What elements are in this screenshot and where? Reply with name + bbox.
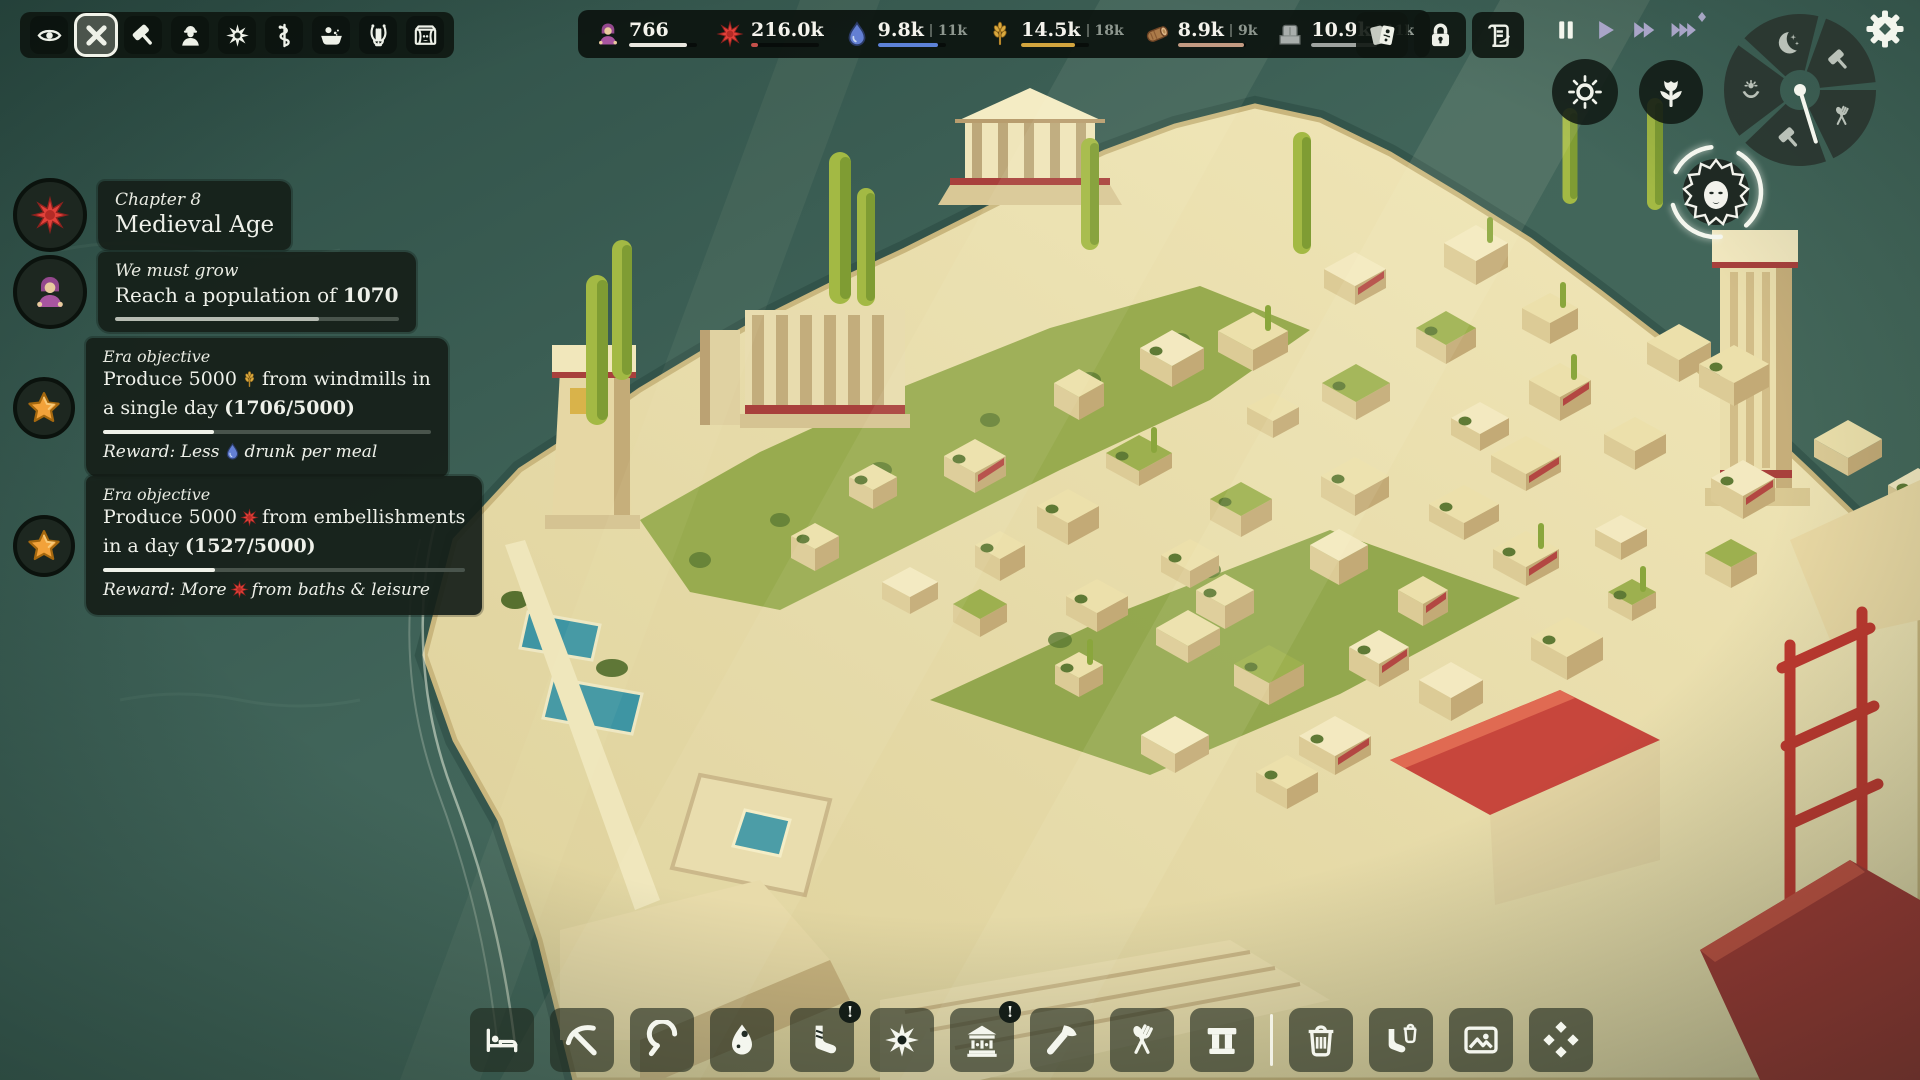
egg-icon: [722, 1020, 762, 1060]
sickle-icon: [642, 1020, 682, 1060]
star-icon: [26, 390, 62, 426]
build-cutlery-button[interactable]: [1110, 1008, 1174, 1072]
era1-progress-bar: [103, 430, 431, 434]
lock-button[interactable]: [1414, 12, 1466, 58]
wheat-icon: [240, 370, 259, 389]
build-spiky-sun-button[interactable]: [870, 1008, 934, 1072]
resource-bar-track: [629, 43, 697, 47]
era2-kicker: Era objective: [103, 485, 465, 505]
population-icon-holder: [13, 255, 87, 329]
red-sun-icon: [716, 19, 744, 49]
era-objective-windmills[interactable]: Era objective Produce 5000from windmills…: [13, 338, 448, 477]
picture-icon: [1461, 1020, 1501, 1060]
red-sun-icon: [30, 195, 70, 235]
tool-spiky-sun-button[interactable]: [218, 16, 256, 54]
resource-wood-log[interactable]: 8.9k9k: [1143, 19, 1258, 49]
era1-kicker: Era objective: [103, 347, 431, 367]
fast-forward-icon: [1630, 16, 1658, 44]
resource-value: 766: [629, 21, 669, 40]
tool-lyre-button[interactable]: [359, 16, 397, 54]
spiky-sun-icon: [224, 22, 251, 49]
resource-villager[interactable]: 766: [594, 19, 697, 49]
build-sandal-trash-button[interactable]: [1369, 1008, 1433, 1072]
resource-value: 216.0k: [751, 21, 824, 40]
era2-progress-bar: [103, 568, 465, 572]
tool-bath-button[interactable]: [312, 16, 350, 54]
fastest-forward-button[interactable]: [1669, 16, 1697, 44]
resource-max: 11k: [938, 24, 967, 38]
tulip-icon: [1652, 73, 1690, 111]
build-diamonds-button[interactable]: [1529, 1008, 1593, 1072]
settings-button[interactable]: [1864, 8, 1906, 50]
hand-axe-icon: [1042, 1020, 1082, 1060]
sandal-icon: [802, 1020, 842, 1060]
era2-goal: Produce 5000from embellishments in a day…: [103, 505, 465, 560]
eye-icon: [36, 22, 63, 49]
chapter-kicker: Chapter 8: [115, 190, 274, 211]
resource-water-drop[interactable]: 9.8k11k: [843, 19, 967, 49]
tool-theater-button[interactable]: [406, 16, 444, 54]
build-trash-button[interactable]: [1289, 1008, 1353, 1072]
view-mode-toolbar: [20, 12, 454, 58]
water-drop-icon: [223, 442, 242, 461]
alert-badge: !: [999, 1001, 1021, 1023]
resource-red-sun[interactable]: 216.0k: [716, 19, 824, 49]
era-objective-embellishments[interactable]: Era objective Produce 5000from embellish…: [13, 476, 482, 615]
resource-bar: 766216.0k9.8k11k14.5k18k8.9k9k10.9k11k: [578, 10, 1430, 58]
resource-bar-track: [878, 43, 946, 47]
resource-value: 14.5k: [1021, 21, 1080, 40]
arch-icon: [1202, 1020, 1242, 1060]
build-arch-button[interactable]: [1190, 1008, 1254, 1072]
tool-snake-staff-button[interactable]: [265, 16, 303, 54]
spiky-sun-icon: [882, 1020, 922, 1060]
sun-icon: [1566, 73, 1604, 111]
lock-icon: [1425, 20, 1456, 51]
resource-value: 8.9k: [1178, 21, 1224, 40]
pause-button[interactable]: [1552, 16, 1580, 44]
time-controls: [1552, 16, 1697, 44]
build-sandal-button[interactable]: !: [790, 1008, 854, 1072]
action-buttons: [1356, 12, 1524, 58]
chapter-title: Medieval Age: [115, 211, 274, 240]
wood-log-icon: [1143, 19, 1171, 49]
era1-goal: Produce 5000from windmills in a single d…: [103, 367, 431, 422]
build-temple-button[interactable]: !: [950, 1008, 1014, 1072]
divider: [1230, 24, 1232, 37]
wheat-icon: [986, 19, 1014, 49]
temple-icon: [962, 1020, 1002, 1060]
deity-button[interactable]: [1656, 132, 1776, 252]
fastest-forward-icon: [1669, 16, 1697, 44]
water-drop-icon: [843, 19, 871, 49]
era2-reward: Reward: Morefrom baths & leisure: [103, 579, 465, 605]
scroll-quill-icon: [1483, 20, 1514, 51]
sandal-trash-icon: [1381, 1020, 1421, 1060]
era2-star-holder: [13, 515, 75, 577]
mallet-icon: [130, 22, 157, 49]
scroll-quill-button[interactable]: [1472, 12, 1524, 58]
alert-badge: !: [839, 1001, 861, 1023]
red-sun-icon: [230, 580, 249, 599]
pickaxe-icon: [562, 1020, 602, 1060]
resource-max: 9k: [1238, 24, 1257, 38]
build-bed-button[interactable]: [470, 1008, 534, 1072]
tool-eye-button[interactable]: [30, 16, 68, 54]
resource-max: 18k: [1095, 24, 1124, 38]
villager-icon: [594, 19, 622, 49]
tool-builder-button[interactable]: [171, 16, 209, 54]
build-hand-axe-button[interactable]: [1030, 1008, 1094, 1072]
resource-bar-track: [1178, 43, 1246, 47]
toolbar-divider: [1270, 1014, 1273, 1066]
build-sickle-button[interactable]: [630, 1008, 694, 1072]
population-progress-bar: [115, 317, 399, 321]
play-icon: [1591, 16, 1619, 44]
divider: [930, 24, 932, 37]
build-pickaxe-button[interactable]: [550, 1008, 614, 1072]
lyre-icon: [365, 22, 392, 49]
cancel-icon: [83, 22, 110, 49]
population-goal: Reach a population of 1070: [115, 282, 399, 309]
gear-icon: [1864, 8, 1906, 50]
resource-value: 9.8k: [878, 21, 924, 40]
resource-bar-track: [1021, 43, 1089, 47]
theater-icon: [412, 22, 439, 49]
builder-icon: [177, 22, 204, 49]
population-objective[interactable]: We must grow Reach a population of 1070: [13, 252, 416, 332]
build-picture-button[interactable]: [1449, 1008, 1513, 1072]
build-toolbar: !!: [470, 1008, 1593, 1072]
red-sun-icon: [240, 508, 259, 527]
era1-reward: Reward: Lessdrunk per meal: [103, 441, 431, 467]
diamonds-icon: [1541, 1020, 1581, 1060]
resource-wheat[interactable]: 14.5k18k: [986, 19, 1124, 49]
snake-staff-icon: [271, 22, 298, 49]
cards-icon: [1367, 20, 1398, 51]
beauty-overlay-button[interactable]: [1639, 60, 1703, 124]
pause-icon: [1552, 16, 1580, 44]
trash-icon: [1301, 1020, 1341, 1060]
tool-mallet-button[interactable]: [124, 16, 162, 54]
bath-icon: [318, 22, 345, 49]
villager-icon: [30, 272, 70, 312]
resource-bar-track: [751, 43, 819, 47]
divider: [1087, 24, 1089, 37]
tool-cancel-button[interactable]: [77, 16, 115, 54]
bed-icon: [482, 1020, 522, 1060]
star-icon: [26, 528, 62, 564]
chapter-banner[interactable]: Chapter 8 Medieval Age: [13, 178, 291, 252]
fast-forward-button[interactable]: [1630, 16, 1658, 44]
population-kicker: We must grow: [115, 261, 399, 282]
chapter-icon-holder: [13, 178, 87, 252]
sun-overlay-button[interactable]: [1552, 59, 1618, 125]
stone-icon: [1276, 19, 1304, 49]
build-egg-button[interactable]: [710, 1008, 774, 1072]
era1-star-holder: [13, 377, 75, 439]
play-button[interactable]: [1591, 16, 1619, 44]
cards-button[interactable]: [1356, 12, 1408, 58]
cutlery-icon: [1122, 1020, 1162, 1060]
